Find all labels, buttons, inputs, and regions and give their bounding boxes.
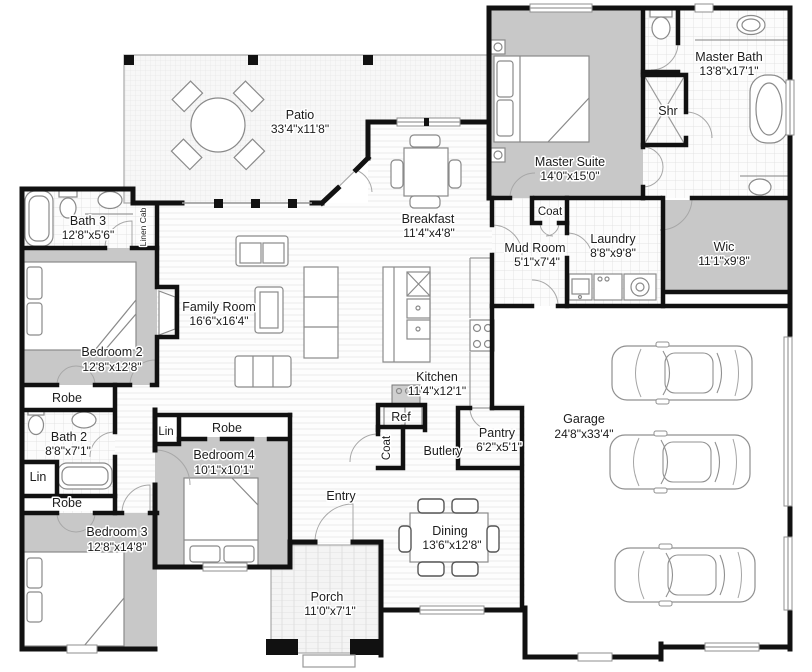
room-label-robe2: Robe (52, 496, 82, 510)
svg-text:Bedroom 2: Bedroom 2 (81, 345, 142, 359)
bed-bedroom4 (184, 478, 258, 566)
laundry-appliances (569, 274, 656, 300)
porch-pier (266, 639, 298, 655)
room-label-lin1: Lin (30, 470, 47, 484)
fireplace (159, 291, 175, 335)
room-label-robe1: Robe (52, 391, 82, 405)
car-icon (615, 544, 755, 606)
room-label-laundry: Laundry 8'8"x9'8" (590, 232, 636, 260)
room-label-pantry: Pantry 6'2"x5'1" (476, 426, 522, 454)
svg-text:Pantry: Pantry (479, 426, 516, 440)
svg-text:Garage: Garage (563, 412, 605, 426)
svg-text:Dining: Dining (432, 524, 467, 538)
svg-text:Laundry: Laundry (590, 232, 636, 246)
room-label-mud-room: Mud Room 5'1"x7'4" (504, 241, 565, 269)
svg-text:Bath 2: Bath 2 (51, 430, 87, 444)
svg-text:Porch: Porch (311, 590, 344, 604)
svg-text:33'4"x11'8": 33'4"x11'8" (271, 122, 329, 136)
svg-text:11'4"x4'8": 11'4"x4'8" (403, 226, 455, 240)
svg-text:8'8"x7'1": 8'8"x7'1" (45, 444, 91, 458)
car-icon (610, 431, 750, 493)
room-label-kitchen: Kitchen 11'4"x12'1" (408, 370, 466, 398)
svg-text:6'2"x5'1": 6'2"x5'1" (476, 440, 522, 454)
room-label-ref: Ref (391, 410, 411, 424)
svg-text:12'8"x5'6": 12'8"x5'6" (62, 228, 114, 242)
room-label-bath2: Bath 2 8'8"x7'1" (45, 430, 91, 458)
car-icon (612, 342, 752, 404)
room-label-garage: Garage 24'8"x33'4" (554, 412, 613, 441)
room-label-butlery: Butlery (424, 444, 464, 458)
svg-text:Breakfast: Breakfast (402, 212, 455, 226)
room-label-lin2: Lin (158, 426, 173, 438)
room-label-linen-cab: Linen Cab (138, 207, 148, 246)
svg-text:10'1"x10'1": 10'1"x10'1" (194, 463, 253, 477)
svg-text:11'1"x9'8": 11'1"x9'8" (698, 254, 750, 268)
svg-text:12'8"x12'8": 12'8"x12'8" (82, 360, 141, 374)
room-label-coat-master: Coat (538, 206, 563, 218)
room-label-coat-entry: Coat (381, 435, 393, 460)
svg-text:Family Room: Family Room (182, 300, 256, 314)
svg-text:8'8"x9'8": 8'8"x9'8" (590, 246, 636, 260)
svg-text:14'0"x15'0": 14'0"x15'0" (540, 169, 599, 183)
room-label-breakfast: Breakfast 11'4"x4'8" (402, 212, 455, 240)
svg-text:16'6"x16'4": 16'6"x16'4" (189, 314, 248, 328)
room-label-master-suite: Master Suite 14'0"x15'0" (535, 155, 605, 183)
room-label-family-room: Family Room 16'6"x16'4" (182, 300, 256, 328)
room-label-robe3: Robe (212, 421, 242, 435)
bed-bedroom2 (24, 262, 136, 350)
bed-bedroom3 (24, 552, 124, 646)
svg-text:13'8"x17'1": 13'8"x17'1" (699, 64, 758, 78)
svg-text:24'8"x33'4": 24'8"x33'4" (554, 427, 613, 441)
svg-text:11'4"x12'1": 11'4"x12'1" (408, 384, 466, 398)
svg-text:Kitchen: Kitchen (416, 370, 458, 384)
room-label-bedroom3: Bedroom 3 12'8"x14'8" (86, 525, 147, 554)
svg-text:Master Bath: Master Bath (695, 50, 762, 64)
svg-text:Bedroom 3: Bedroom 3 (86, 525, 147, 539)
room-label-entry: Entry (326, 489, 356, 503)
svg-text:Master Suite: Master Suite (535, 155, 605, 169)
porch-pier (350, 639, 382, 655)
svg-text:11'0"x7'1": 11'0"x7'1" (304, 604, 356, 618)
svg-text:5'1"x7'4": 5'1"x7'4" (514, 255, 560, 269)
svg-text:12'8"x14'8": 12'8"x14'8" (87, 540, 146, 554)
floor-plan-page: Patio 33'4"x11'8" Bath 3 12'8"x5'6" Line… (0, 0, 812, 672)
room-label-master-bath: Master Bath 13'8"x17'1" (695, 50, 762, 78)
svg-text:Wic: Wic (714, 240, 735, 254)
svg-text:13'6"x12'8": 13'6"x12'8" (422, 538, 481, 552)
svg-text:Mud Room: Mud Room (504, 241, 565, 255)
floor-plan-canvas: Patio 33'4"x11'8" Bath 3 12'8"x5'6" Line… (0, 0, 812, 672)
svg-text:Patio: Patio (286, 108, 315, 122)
svg-text:Bath 3: Bath 3 (70, 214, 106, 228)
svg-text:Bedroom 4: Bedroom 4 (193, 448, 254, 462)
room-label-bedroom4: Bedroom 4 10'1"x10'1" (193, 448, 254, 477)
room-label-shower: Shr (658, 104, 677, 118)
porch-step (303, 655, 355, 667)
room-label-bedroom2: Bedroom 2 12'8"x12'8" (81, 345, 142, 374)
